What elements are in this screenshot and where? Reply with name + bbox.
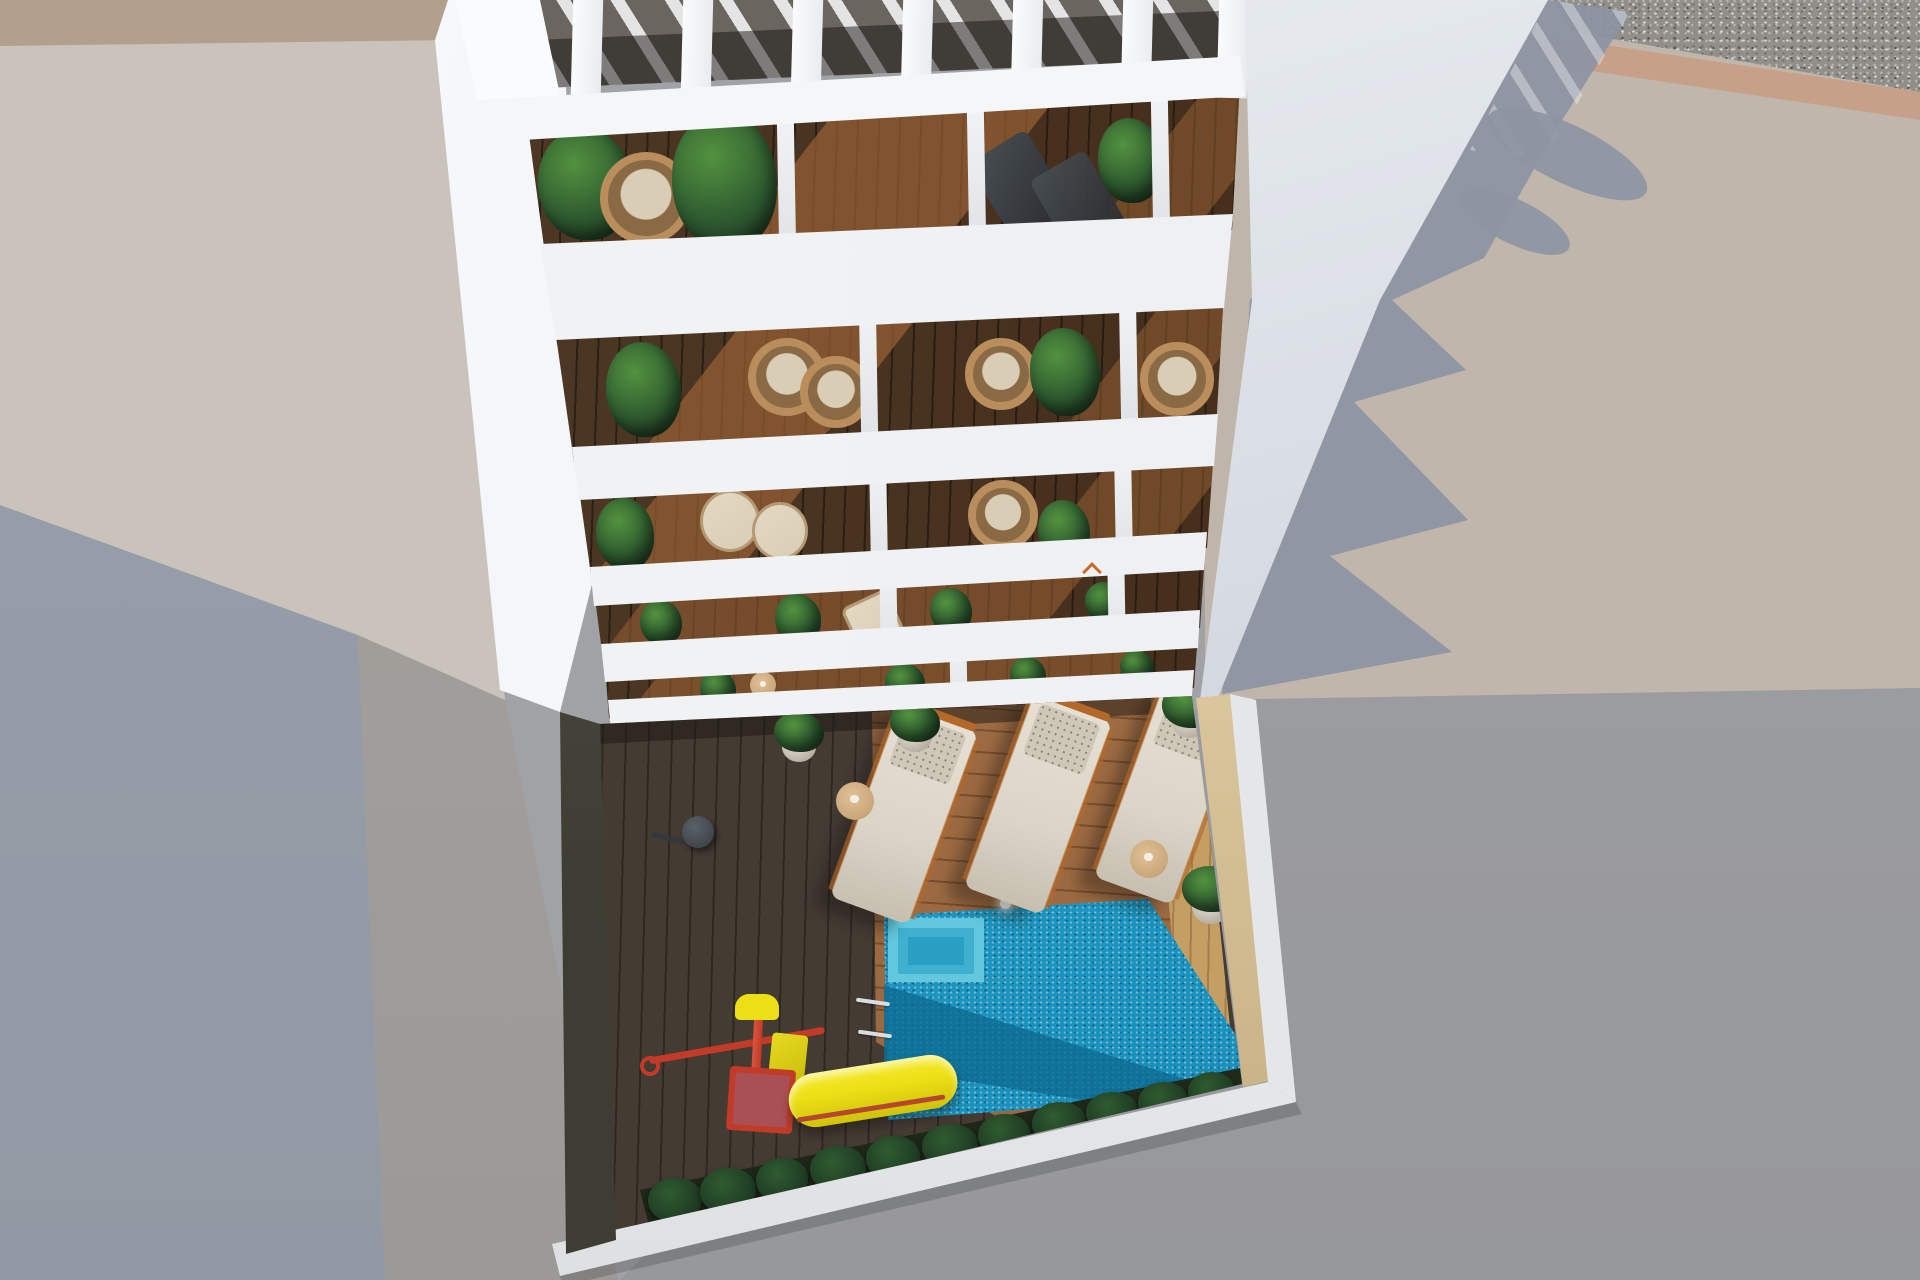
playground-ring	[640, 1056, 660, 1076]
playground-top	[735, 994, 779, 1020]
cushion-chair	[700, 490, 760, 552]
balcony-plant	[640, 600, 682, 645]
cushion-chair	[752, 502, 808, 560]
pool-step	[908, 937, 964, 965]
playground-pink-box	[726, 1066, 796, 1134]
wicker-chair	[965, 338, 1037, 410]
wicker-chair	[968, 480, 1038, 550]
wicker-chair	[1140, 342, 1214, 416]
side-table	[1130, 840, 1168, 878]
pergola-slat	[681, 0, 714, 98]
balcony-plant	[1030, 328, 1100, 416]
pool-shower	[682, 816, 714, 848]
aerial-render-scene	[0, 0, 1920, 1280]
pool-step	[898, 928, 974, 974]
pool-shower-arm	[652, 832, 686, 845]
balcony-divider	[1151, 92, 1171, 237]
balcony-plant	[596, 498, 654, 570]
pool-steps	[888, 918, 984, 982]
potted-plant	[774, 712, 824, 752]
side-table	[836, 782, 874, 820]
pergola-slat	[571, 0, 604, 98]
balcony-plant	[606, 342, 681, 437]
balcony-plant	[672, 112, 777, 250]
